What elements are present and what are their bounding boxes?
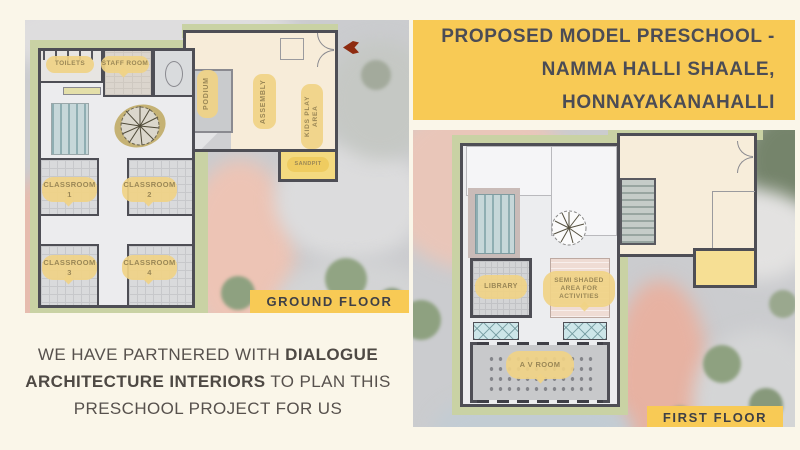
av-window-dashes <box>477 400 603 403</box>
first-floor-aerial-photo: LIBRARY SEMI SHADED AREA FOR ACTIVITIES … <box>413 130 795 427</box>
meeting-room <box>153 51 192 97</box>
first-floor-tag: FIRST FLOOR <box>647 406 783 427</box>
tree-icon <box>413 300 441 340</box>
room-label-podium: PODIUM <box>197 70 218 118</box>
room-label-library: LIBRARY <box>475 275 527 299</box>
tree-icon <box>361 60 391 90</box>
door-arc <box>317 33 334 50</box>
partner-text: WE HAVE PARTNERED WITH DIALOGUEARCHITECT… <box>12 341 404 422</box>
staircase <box>51 103 89 155</box>
tree-icon <box>113 100 167 152</box>
title-line-1: PROPOSED MODEL PRESCHOOL - <box>413 26 775 48</box>
room-label-sandpit: SANDPIT <box>287 157 329 172</box>
ground-floor-aerial-photo: TOILETS STAFF ROOM PODIUM ASSEMBLY KIDS … <box>25 20 409 313</box>
title-line-3: HONNAYAKANAHALLI <box>413 92 775 114</box>
pergola <box>620 178 656 245</box>
room-label-assembly: ASSEMBLY <box>253 74 276 129</box>
sink-counter <box>63 87 101 95</box>
meeting-table <box>165 61 183 87</box>
room-label-toilets: TOILETS <box>46 56 94 73</box>
door-arc <box>737 141 753 157</box>
av-window-dashes <box>477 342 603 345</box>
walkway-bridge <box>563 322 607 340</box>
door-arc <box>737 157 753 173</box>
room-label-semi-shaded: SEMI SHADED AREA FOR ACTIVITIES <box>543 271 615 307</box>
terrace-step <box>693 248 757 288</box>
tree-icon <box>703 345 741 383</box>
title-line-2: NAMMA HALLI SHAALE, <box>413 59 775 81</box>
terrace-partition <box>712 191 755 256</box>
play-table-outline <box>280 38 304 60</box>
title-box: PROPOSED MODEL PRESCHOOL - NAMMA HALLI S… <box>413 20 795 120</box>
staircase <box>475 194 515 254</box>
walkway-bridge <box>473 322 519 340</box>
slide: TOILETS STAFF ROOM PODIUM ASSEMBLY KIDS … <box>0 0 800 450</box>
terrace <box>617 133 757 257</box>
tree-icon <box>769 290 795 318</box>
door-arc <box>317 50 334 67</box>
room-label-kids-play-area: KIDS PLAY AREA <box>301 84 323 149</box>
tree-icon <box>550 209 588 247</box>
ground-floor-tag: GROUND FLOOR <box>250 290 409 313</box>
